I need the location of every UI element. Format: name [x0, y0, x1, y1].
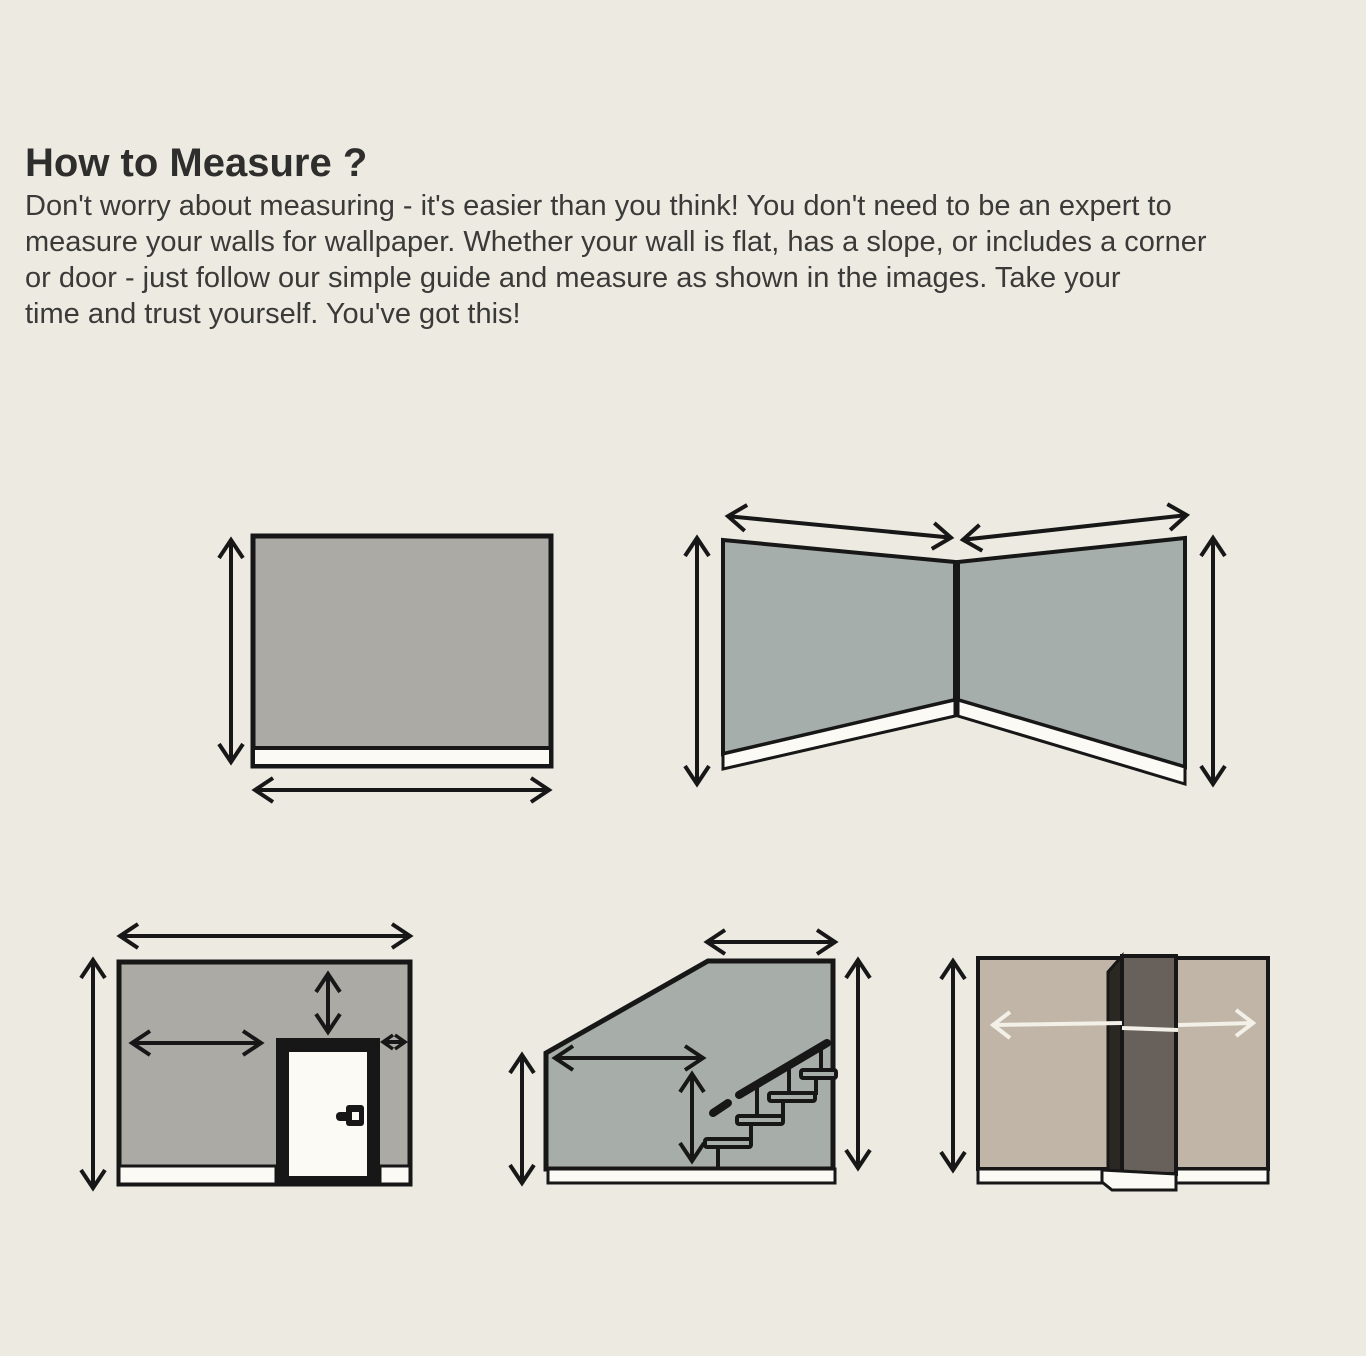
column	[1102, 956, 1176, 1190]
intro-line-2: measure your walls for wallpaper. Whethe…	[25, 224, 1206, 260]
intro-line-1: Don't worry about measuring - it's easie…	[25, 188, 1206, 224]
column-baseboard	[1102, 1170, 1176, 1190]
flat-wall-shape	[253, 536, 551, 766]
intro-line-3: or door - just follow our simple guide a…	[25, 260, 1206, 296]
width-measure-arrow	[255, 778, 549, 802]
right-height-arrow	[846, 960, 870, 1168]
wall-with-door-illustration	[78, 918, 430, 1210]
flat-wall-illustration	[205, 510, 575, 810]
left-height-arrow	[941, 961, 965, 1170]
wall-with-door-diagram	[78, 918, 430, 1210]
sloped-wall-stairs-illustration	[505, 925, 880, 1205]
height-measure-arrow	[219, 540, 243, 762]
intro-line-4: time and trust yourself. You've got this…	[25, 296, 1206, 332]
corner-wall-illustration	[668, 492, 1234, 804]
corner-wall-shape	[723, 538, 1185, 784]
top-width-arrow	[707, 930, 835, 954]
baseboard-right	[380, 1166, 410, 1184]
page-title: How to Measure ?	[25, 141, 367, 186]
right-height-arrow	[1201, 538, 1225, 784]
door	[276, 1038, 380, 1184]
full-height-arrow	[81, 960, 105, 1188]
column-side-face	[1108, 956, 1122, 1174]
left-height-arrow	[510, 1055, 534, 1183]
full-width-arrow	[120, 924, 410, 948]
baseboard-left	[119, 1166, 276, 1184]
left-height-arrow	[685, 538, 709, 784]
baseboard	[253, 748, 551, 766]
measure-guide-page: How to Measure ? Don't worry about measu…	[0, 0, 1366, 1356]
wall-with-column-diagram	[930, 945, 1290, 1205]
intro-paragraph: Don't worry about measuring - it's easie…	[25, 188, 1206, 332]
baseboard	[548, 1169, 835, 1183]
column-front-face	[1122, 956, 1176, 1174]
flat-wall-diagram	[205, 510, 575, 810]
sloped-wall-stairs-diagram	[505, 925, 880, 1205]
corner-wall-diagram	[668, 492, 1234, 804]
wall-with-column-illustration	[930, 945, 1290, 1205]
